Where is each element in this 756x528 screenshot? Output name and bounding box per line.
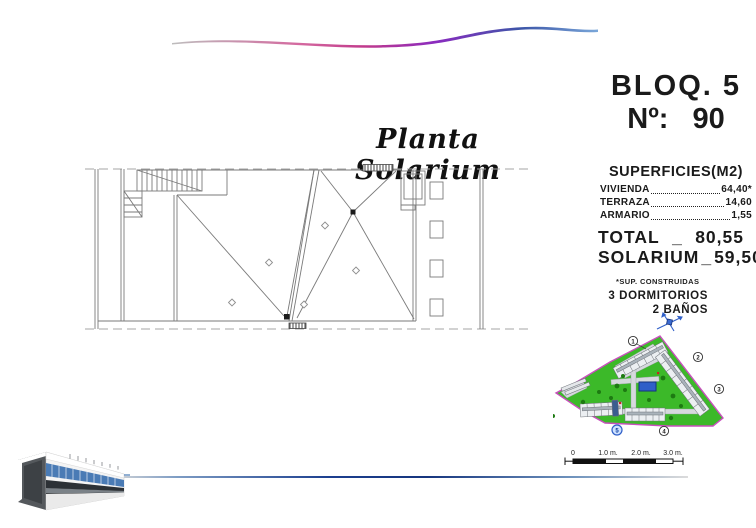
bedrooms-label: 3 DORMITORIOS	[560, 289, 708, 303]
superficies-row: VIVIENDA 64,40*	[600, 183, 752, 196]
scale-tick-0: 0	[571, 450, 575, 457]
scale-bar: 0 1.0 m. 2.0 m. 3.0 m.	[563, 447, 699, 471]
total-label: TOTAL	[598, 227, 660, 247]
superficies-table: SUPERFICIES(M2) VIVIENDA 64,40* TERRAZA …	[600, 164, 752, 222]
totals-block: TOTAL _ 80,55 SOLARIUM _ 59,50	[598, 227, 744, 267]
row-value: 64,40*	[721, 183, 752, 196]
superficies-row: TERRAZA 14,60	[600, 196, 752, 209]
scale-tick-3: 3.0 m.	[663, 450, 683, 457]
separator: _	[699, 247, 714, 267]
vent-symbols	[229, 222, 360, 308]
solarium-row: SOLARIUM _ 59,50	[598, 247, 744, 267]
superficies-row: ARMARIO 1,55	[600, 209, 752, 222]
decorative-ribbon	[170, 20, 600, 54]
row-label: ARMARIO	[600, 209, 650, 222]
solarium-value: 59,50	[714, 247, 756, 267]
floor-plan-drawing	[85, 160, 530, 338]
row-value: 14,60	[725, 196, 752, 209]
developer-logo	[12, 442, 130, 524]
scale-tick-2: 2.0 m.	[631, 450, 651, 457]
divider-line	[108, 476, 688, 478]
constructed-area-footnote: *SUP. CONSTRUIDAS	[616, 277, 699, 286]
grille-hatch	[363, 165, 393, 172]
leader-dots	[651, 219, 730, 220]
grille-hatch	[289, 323, 306, 329]
solarium-label: SOLARIUM	[598, 247, 699, 267]
total-value: 80,55	[695, 227, 744, 247]
pool	[639, 382, 656, 391]
number-label: Nº:	[627, 102, 668, 136]
site-plan-map: 1 2 3 4 5	[553, 326, 755, 450]
scale-tick-1: 1.0 m.	[598, 450, 618, 457]
block-header: BLOQ. 5 Nº: 90	[594, 70, 756, 136]
number-value: 90	[692, 102, 724, 136]
total-row: TOTAL _ 80,55	[598, 227, 744, 247]
roof-drain	[351, 210, 356, 215]
row-label: VIVIENDA	[600, 183, 650, 196]
plan-sheet: Planta Solarium	[0, 0, 756, 528]
row-label: TERRAZA	[600, 196, 650, 209]
block-label: BLOQ. 5	[594, 70, 756, 102]
separator: _	[670, 227, 685, 247]
leader-dots	[651, 206, 725, 207]
superficies-title: SUPERFICIES(M2)	[600, 164, 752, 180]
roof-drain	[284, 314, 290, 320]
leader-dots	[651, 193, 721, 194]
row-value: 1,55	[731, 209, 752, 222]
